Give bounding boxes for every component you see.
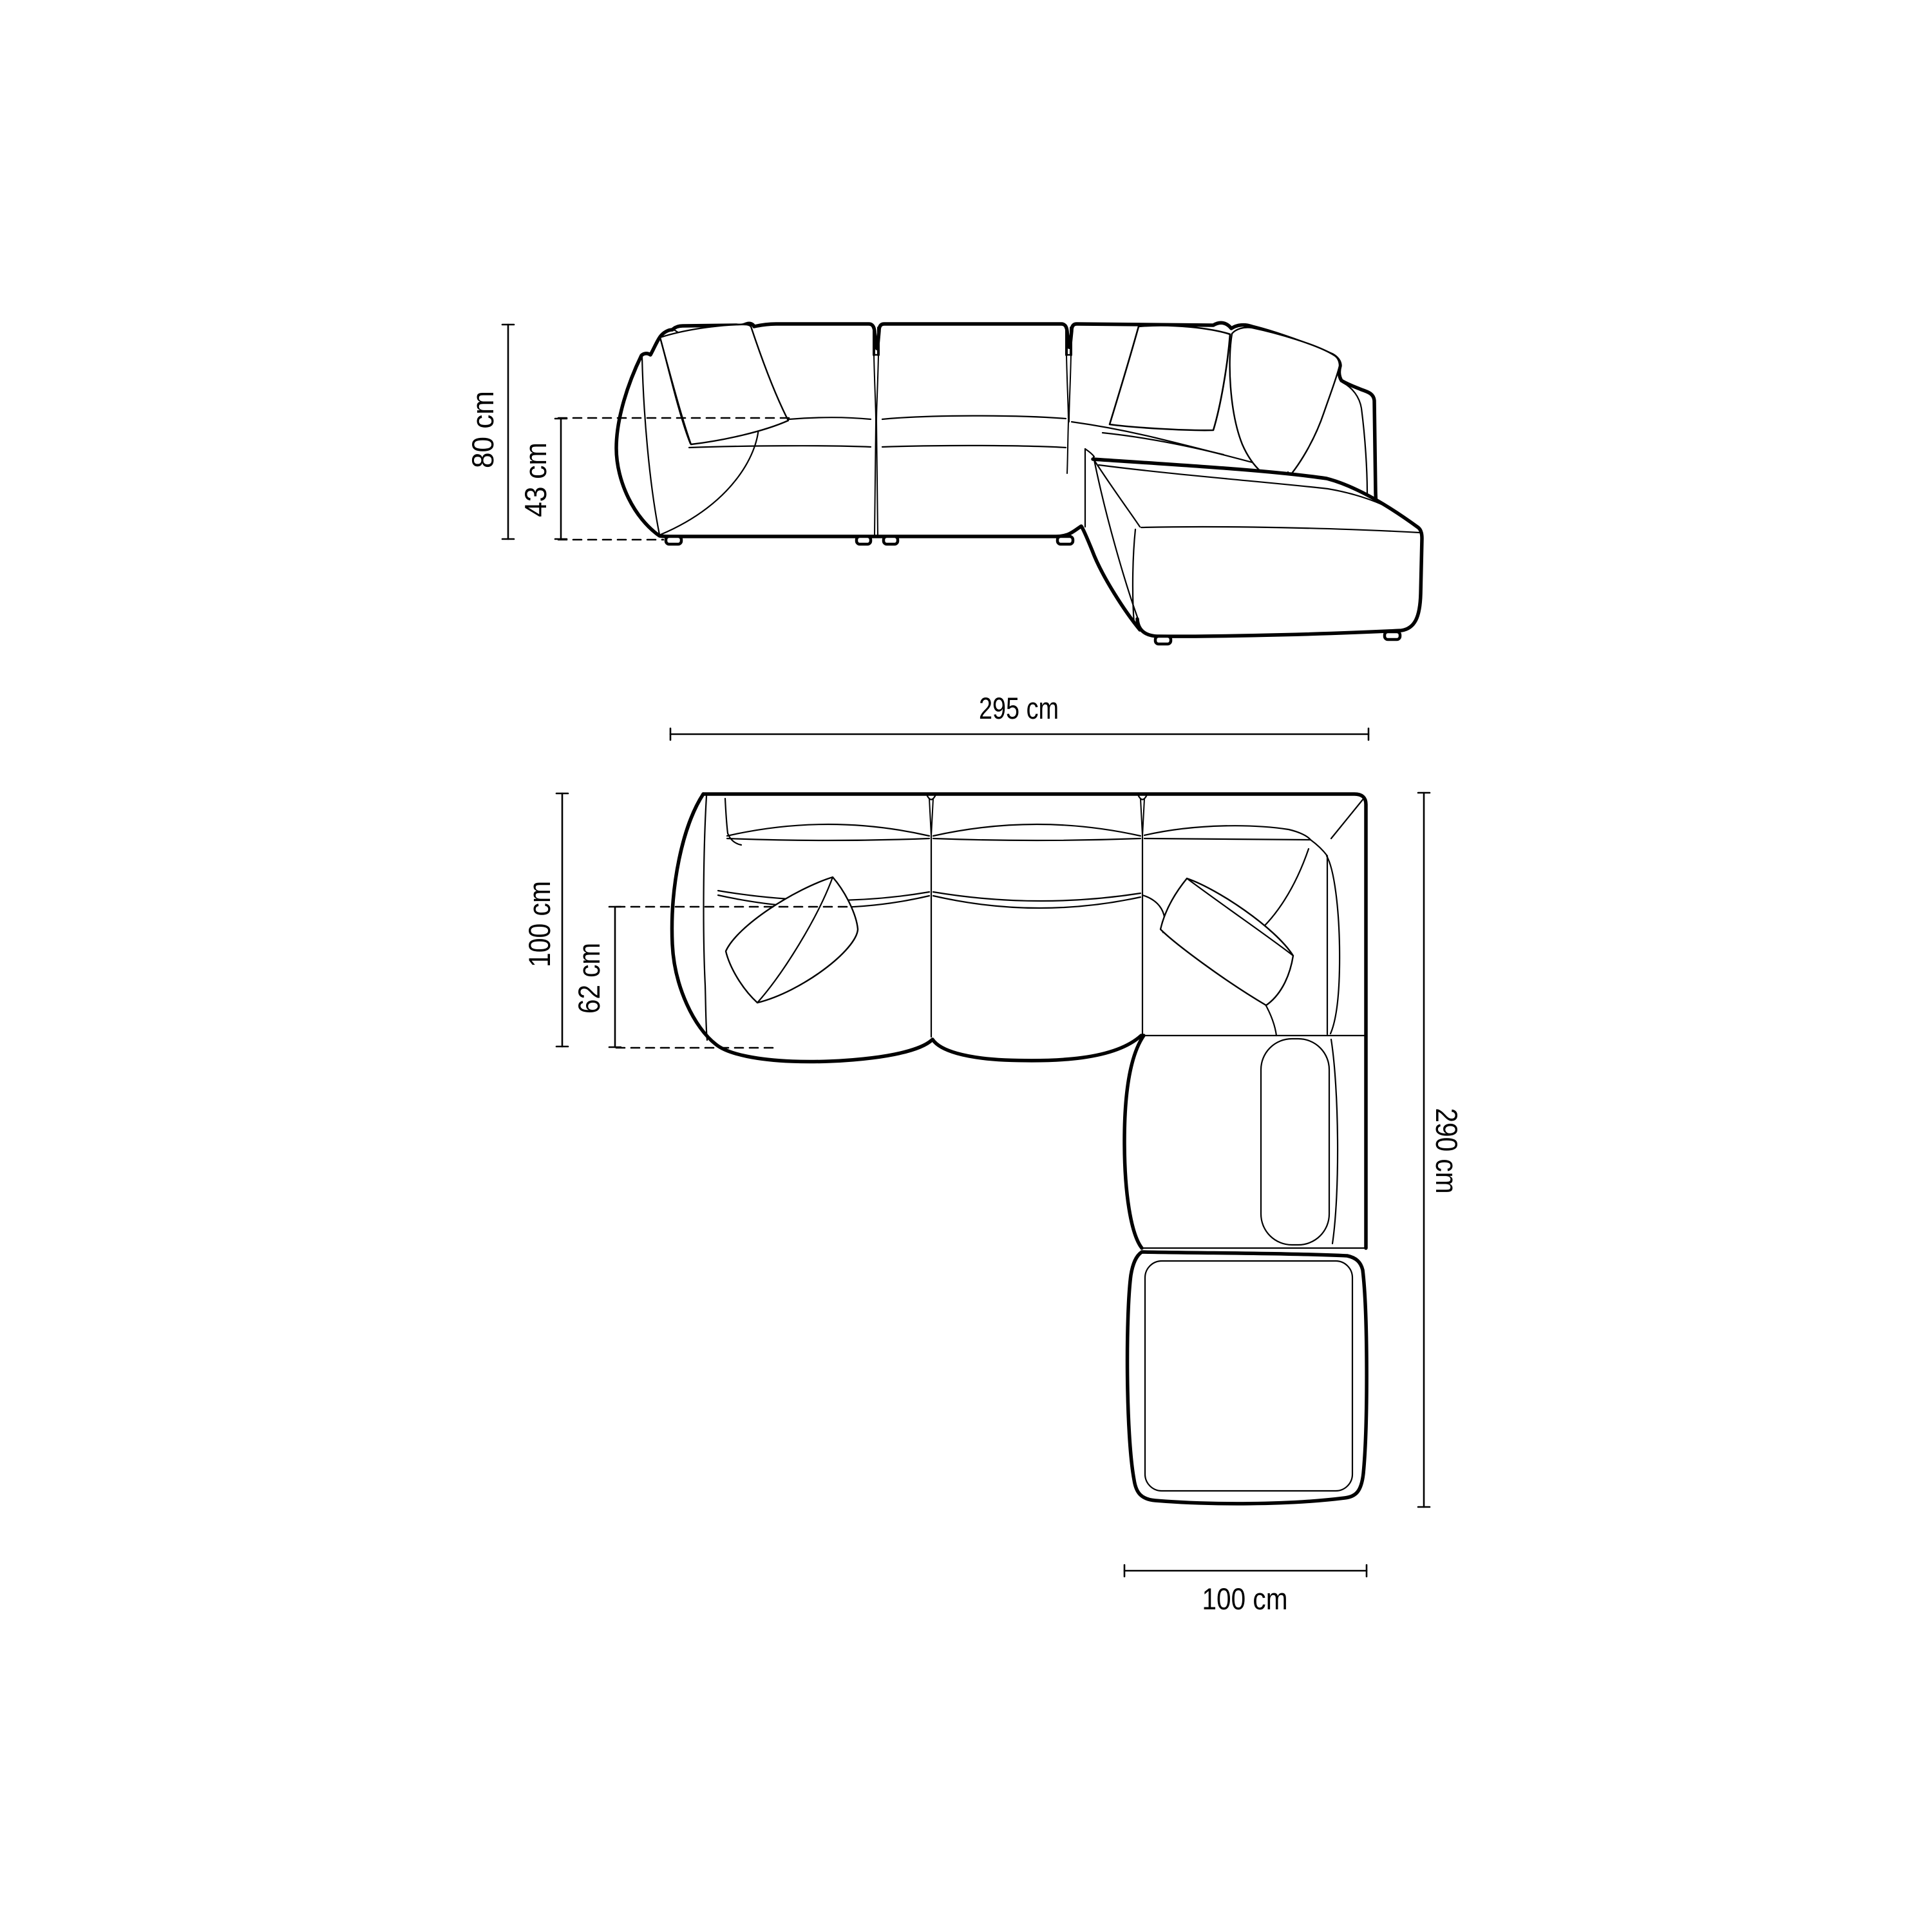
svg-text:100 cm: 100 cm [522, 881, 556, 967]
svg-text:290 cm: 290 cm [1430, 1108, 1464, 1194]
svg-text:80 cm: 80 cm [466, 391, 500, 468]
svg-text:295 cm: 295 cm [979, 691, 1059, 725]
svg-text:62 cm: 62 cm [572, 943, 606, 1014]
svg-text:100 cm: 100 cm [1202, 1582, 1288, 1616]
svg-text:43 cm: 43 cm [518, 442, 553, 517]
